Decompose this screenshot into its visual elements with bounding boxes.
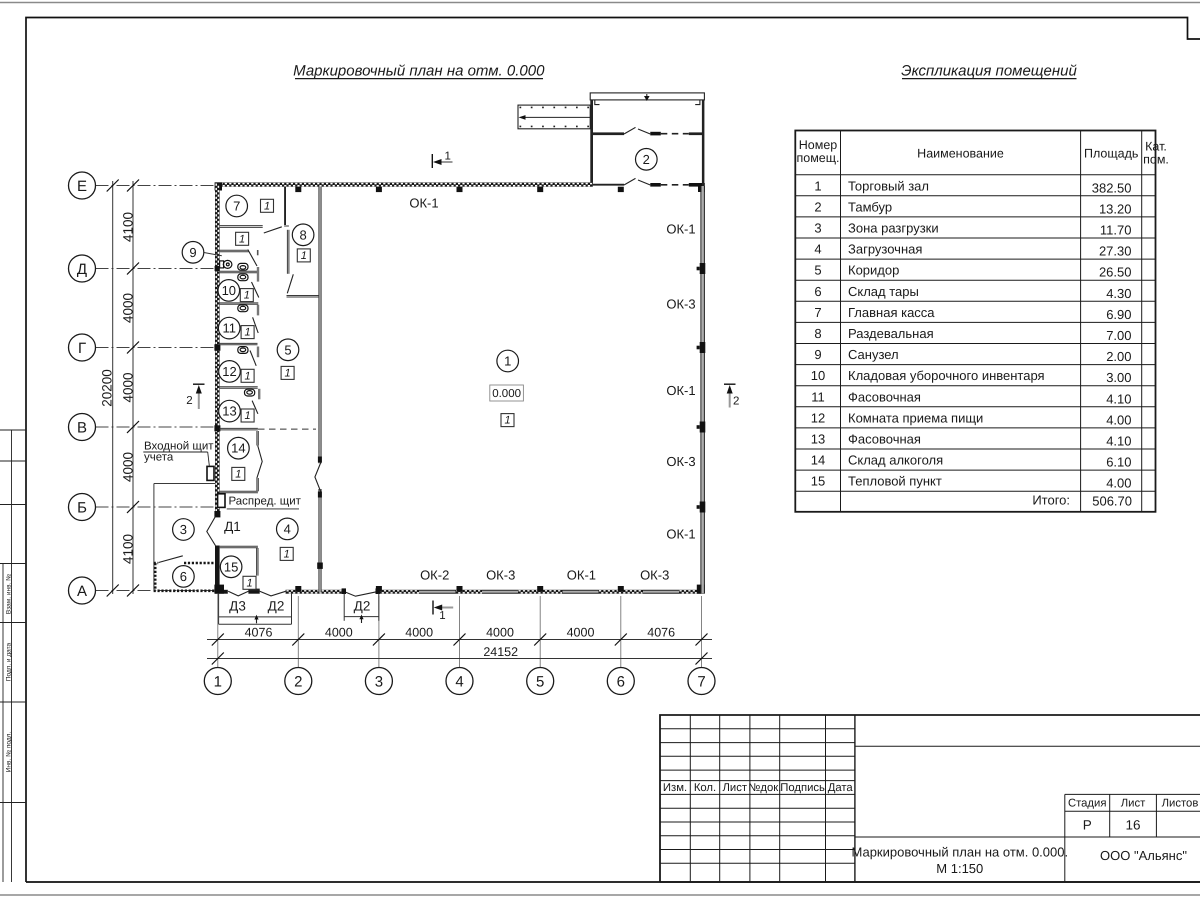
svg-text:Площадь: Площадь [1084, 147, 1138, 161]
svg-text:9: 9 [189, 245, 196, 260]
svg-text:5: 5 [284, 342, 291, 357]
svg-text:Инв. № подл.: Инв. № подл. [6, 732, 13, 773]
svg-text:1: 1 [246, 577, 252, 589]
svg-text:Изм.: Изм. [663, 782, 687, 794]
svg-text:12: 12 [811, 410, 825, 425]
svg-text:М 1:150: М 1:150 [936, 861, 983, 876]
svg-text:2: 2 [186, 395, 192, 407]
svg-text:Д1: Д1 [224, 519, 241, 534]
svg-text:3: 3 [375, 673, 383, 690]
svg-text:Номер: Номер [799, 138, 838, 152]
svg-text:7: 7 [233, 199, 240, 214]
svg-text:Тепловой пункт: Тепловой пункт [848, 474, 942, 489]
svg-text:4000: 4000 [120, 372, 135, 402]
svg-text:Маркировочный план на отм. 0.0: Маркировочный план на отм. 0.000 [293, 63, 545, 80]
svg-text:1: 1 [244, 290, 250, 302]
svg-text:Подпись: Подпись [780, 782, 825, 794]
svg-text:В: В [77, 419, 87, 436]
svg-text:7: 7 [697, 673, 705, 690]
svg-text:1: 1 [301, 250, 307, 262]
svg-text:1: 1 [814, 178, 821, 193]
svg-text:Стадия: Стадия [1068, 798, 1107, 810]
svg-text:Тамбур: Тамбур [848, 199, 892, 214]
svg-text:15: 15 [224, 559, 238, 574]
svg-text:Кладовая уборочного инвентаря: Кладовая уборочного инвентаря [848, 368, 1045, 383]
svg-text:ОК-1: ОК-1 [567, 568, 596, 583]
svg-text:14: 14 [231, 441, 245, 456]
svg-text:13.20: 13.20 [1099, 201, 1132, 216]
svg-text:4100: 4100 [120, 534, 135, 564]
svg-text:1: 1 [504, 415, 510, 427]
svg-text:2.00: 2.00 [1106, 349, 1131, 364]
svg-text:Санузел: Санузел [848, 347, 899, 362]
svg-text:2: 2 [643, 152, 650, 167]
svg-text:3: 3 [180, 522, 187, 537]
svg-text:16: 16 [1125, 818, 1140, 833]
svg-text:4: 4 [455, 673, 463, 690]
svg-text:5: 5 [536, 673, 544, 690]
svg-text:6.10: 6.10 [1106, 455, 1131, 470]
svg-text:5: 5 [814, 263, 821, 278]
svg-text:26.50: 26.50 [1099, 265, 1132, 280]
svg-text:2: 2 [294, 673, 302, 690]
svg-text:Листов: Листов [1162, 798, 1199, 810]
svg-text:4: 4 [284, 521, 291, 536]
svg-text:ОК-2: ОК-2 [420, 568, 449, 583]
svg-text:4000: 4000 [567, 626, 595, 640]
svg-text:6: 6 [617, 673, 625, 690]
svg-text:27.30: 27.30 [1099, 244, 1132, 259]
svg-text:ОК-3: ОК-3 [666, 454, 695, 469]
svg-text:ОК-3: ОК-3 [640, 568, 669, 583]
svg-text:11: 11 [222, 321, 236, 336]
svg-text:13: 13 [811, 432, 825, 447]
svg-text:учета: учета [144, 452, 174, 464]
svg-text:Раздевальная: Раздевальная [848, 326, 934, 341]
svg-text:1: 1 [239, 233, 245, 245]
svg-text:Склад алкоголя: Склад алкоголя [848, 453, 943, 468]
svg-text:2: 2 [814, 199, 821, 214]
svg-text:Е: Е [77, 178, 87, 195]
svg-text:1: 1 [504, 354, 511, 369]
svg-text:Коридор: Коридор [848, 263, 899, 278]
svg-text:4000: 4000 [405, 626, 433, 640]
svg-text:12: 12 [222, 364, 236, 379]
svg-text:1: 1 [284, 548, 290, 560]
svg-text:Лист: Лист [1121, 798, 1146, 810]
svg-text:Фасовочная: Фасовочная [848, 389, 921, 404]
svg-text:4100: 4100 [120, 212, 135, 242]
svg-text:Г: Г [78, 340, 86, 357]
svg-text:8: 8 [814, 326, 821, 341]
svg-text:6.90: 6.90 [1106, 307, 1131, 322]
svg-text:Р: Р [1083, 818, 1092, 833]
svg-text:1: 1 [245, 410, 251, 422]
svg-text:4000: 4000 [486, 626, 514, 640]
svg-text:2: 2 [733, 396, 739, 408]
svg-text:7: 7 [814, 305, 821, 320]
svg-text:382.50: 382.50 [1092, 180, 1132, 195]
svg-text:1: 1 [264, 200, 270, 212]
svg-text:4.10: 4.10 [1106, 434, 1131, 449]
svg-text:Б: Б [77, 499, 87, 516]
svg-text:Маркировочный план на отм. 0.0: Маркировочный план на отм. 0.000. [852, 845, 1069, 860]
svg-text:Фасовочная: Фасовочная [848, 432, 921, 447]
svg-text:13: 13 [222, 404, 236, 419]
svg-text:3.00: 3.00 [1106, 370, 1131, 385]
svg-text:Лист: Лист [723, 782, 748, 794]
svg-text:1: 1 [245, 327, 251, 339]
svg-text:Склад тары: Склад тары [848, 284, 919, 299]
svg-text:ОК-3: ОК-3 [666, 297, 695, 312]
svg-text:ОК-1: ОК-1 [409, 196, 438, 211]
svg-text:Комната приема пищи: Комната приема пищи [848, 410, 983, 425]
svg-text:11.70: 11.70 [1100, 223, 1132, 238]
svg-text:Торговый зал: Торговый зал [848, 178, 929, 193]
svg-text:6: 6 [180, 569, 187, 584]
svg-text:1: 1 [445, 151, 451, 163]
svg-text:4.00: 4.00 [1106, 412, 1131, 427]
svg-text:Итого:: Итого: [1032, 493, 1070, 508]
svg-text:Д2: Д2 [268, 599, 285, 614]
svg-text:24152: 24152 [483, 645, 518, 659]
svg-text:Подп. и дата: Подп. и дата [6, 642, 13, 681]
svg-text:ОК-1: ОК-1 [666, 222, 695, 237]
svg-text:20200: 20200 [100, 369, 115, 407]
svg-text:11: 11 [811, 389, 825, 404]
svg-text:14: 14 [811, 453, 825, 468]
svg-text:Д: Д [77, 261, 87, 278]
svg-text:8: 8 [299, 227, 306, 242]
svg-text:1: 1 [245, 370, 251, 382]
svg-text:Зона разгрузки: Зона разгрузки [848, 221, 939, 236]
svg-text:Кат.: Кат. [1145, 140, 1167, 154]
svg-text:4: 4 [814, 242, 821, 257]
svg-text:4000: 4000 [120, 293, 135, 323]
svg-text:Кол.: Кол. [694, 782, 716, 794]
svg-text:пом.: пом. [1143, 153, 1169, 167]
svg-text:ОК-3: ОК-3 [486, 568, 515, 583]
svg-text:Дата: Дата [828, 782, 854, 794]
svg-text:Распред. щит: Распред. щит [229, 496, 302, 508]
svg-text:6: 6 [814, 284, 821, 299]
svg-text:№док.: №док. [748, 782, 781, 794]
svg-text:Загрузочная: Загрузочная [848, 242, 922, 257]
svg-text:4.00: 4.00 [1106, 476, 1131, 491]
svg-text:9: 9 [814, 347, 821, 362]
svg-text:Главная касса: Главная касса [848, 305, 935, 320]
svg-text:4076: 4076 [245, 626, 273, 640]
svg-text:4000: 4000 [325, 626, 353, 640]
svg-text:ОК-1: ОК-1 [666, 383, 695, 398]
svg-text:1: 1 [439, 610, 445, 622]
svg-text:1: 1 [285, 367, 291, 379]
svg-text:1: 1 [214, 673, 222, 690]
svg-text:4.30: 4.30 [1106, 286, 1131, 301]
svg-text:15: 15 [811, 474, 825, 489]
svg-text:ОК-1: ОК-1 [666, 527, 695, 542]
svg-text:7.00: 7.00 [1106, 328, 1131, 343]
svg-text:Д2: Д2 [354, 599, 371, 614]
svg-text:Экспликация помещений: Экспликация помещений [901, 63, 1077, 80]
svg-text:0.000: 0.000 [492, 388, 521, 400]
svg-text:помещ.: помещ. [796, 151, 839, 165]
svg-text:4076: 4076 [647, 626, 675, 640]
svg-text:Наименование: Наименование [917, 147, 1004, 161]
svg-text:4.10: 4.10 [1106, 391, 1131, 406]
svg-text:1: 1 [235, 468, 241, 480]
svg-text:А: А [77, 583, 87, 600]
svg-text:10: 10 [811, 368, 825, 383]
svg-text:3: 3 [814, 221, 821, 236]
svg-text:Взам. инв. №: Взам. инв. № [6, 574, 13, 614]
svg-text:Д3: Д3 [229, 599, 246, 614]
svg-text:506.70: 506.70 [1092, 494, 1132, 509]
svg-text:4000: 4000 [120, 452, 135, 482]
svg-text:ООО "Альянс": ООО "Альянс" [1100, 848, 1187, 863]
svg-text:10: 10 [222, 283, 236, 298]
